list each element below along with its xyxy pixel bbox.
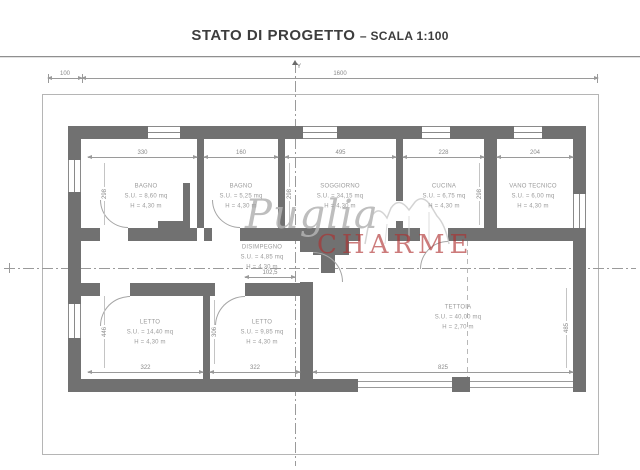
window-top-2 bbox=[303, 126, 337, 139]
dim-width-letto2: 322 bbox=[210, 372, 300, 373]
dim-width-cucina: 228 bbox=[403, 157, 484, 158]
wall-bagno2-soggiorno bbox=[278, 139, 285, 228]
window-right-1 bbox=[573, 194, 586, 228]
dim-label: 228 bbox=[436, 150, 450, 156]
dim-label: 298 bbox=[102, 187, 108, 201]
room-name: VANO TECNICO bbox=[509, 182, 557, 192]
dim-top-margin: 100 bbox=[48, 78, 82, 79]
dim-label: 330 bbox=[135, 150, 149, 156]
window-left-1 bbox=[68, 160, 81, 192]
dim-height-cucina: 298 bbox=[479, 163, 480, 225]
room-name: SOGGIORNO bbox=[317, 182, 364, 192]
room-area: S.U. = 6,00 mq bbox=[509, 192, 557, 202]
wall-soggiorno-cucina-stub bbox=[396, 221, 403, 228]
room-area: S.U. = 6,75 mq bbox=[423, 192, 466, 202]
dim-label: 322 bbox=[248, 365, 262, 371]
dim-width-bagno1: 330 bbox=[88, 157, 197, 158]
room-name: BAGNO bbox=[220, 182, 263, 192]
x-axis-tick bbox=[9, 263, 10, 273]
page-title: STATO DI PROGETTO – SCALA 1:100 bbox=[0, 27, 640, 45]
room-area: S.U. = 34,15 mq bbox=[317, 192, 364, 202]
dim-label: 160 bbox=[234, 150, 248, 156]
room-area: S.U. = 9,85 mq bbox=[241, 328, 284, 338]
wall-letto-top bbox=[210, 283, 215, 296]
room-label-soggiorno: SOGGIORNO S.U. = 34,15 mq H = 4,30 m bbox=[317, 182, 364, 213]
room-name: DISIMPEGNO bbox=[241, 243, 284, 253]
dim-top-overall: 1600 bbox=[82, 78, 598, 79]
dim-width-bagno2: 160 bbox=[204, 157, 278, 158]
wall-sep-top bbox=[448, 228, 586, 241]
dim-disimpegno: 102,5 bbox=[245, 277, 295, 278]
room-label-disimpegno: DISIMPEGNO S.U. = 4,85 mq H = 4,30 m bbox=[241, 243, 284, 274]
title-divider bbox=[0, 56, 640, 57]
room-height: H = 4,30 m bbox=[125, 202, 168, 212]
title-scale: – SCALA 1:100 bbox=[360, 29, 449, 43]
dim-label: 298 bbox=[287, 187, 293, 201]
room-label-cucina: CUCINA S.U. = 6,75 mq H = 4,30 m bbox=[423, 182, 466, 213]
wall-sep-top bbox=[128, 228, 197, 241]
room-height: H = 4,30 m bbox=[509, 202, 557, 212]
room-height: H = 4,30 m bbox=[241, 263, 284, 273]
dim-label: 1600 bbox=[331, 71, 348, 77]
title-main: STATO DI PROGETTO bbox=[191, 27, 355, 44]
dim-width-tettoia: 825 bbox=[313, 372, 573, 373]
dim-label: 485 bbox=[564, 321, 570, 335]
wall-sep-top bbox=[388, 228, 420, 241]
window-top-3 bbox=[422, 126, 450, 139]
y-axis-label: Y bbox=[297, 64, 301, 70]
room-area: S.U. = 4,85 mq bbox=[241, 253, 284, 263]
wall-sep-top bbox=[240, 228, 360, 241]
wall-exterior-bottom bbox=[68, 379, 358, 392]
dim-height-soggiorno: 298 bbox=[289, 163, 290, 225]
dim-label: 322 bbox=[138, 365, 152, 371]
wall-exterior-right bbox=[573, 126, 586, 392]
wall-letto-top bbox=[81, 283, 100, 296]
window-top-1 bbox=[148, 126, 180, 139]
room-area: S.U. = 8,60 mq bbox=[125, 192, 168, 202]
wall-sep-top bbox=[81, 228, 100, 241]
wall-letto-top bbox=[245, 283, 300, 296]
wall-letto1-letto2 bbox=[203, 283, 210, 379]
room-height: H = 4,30 m bbox=[241, 338, 284, 348]
fixture-wall-horizontal bbox=[158, 221, 190, 228]
room-name: CUCINA bbox=[423, 182, 466, 192]
wall-bagno1-bagno2 bbox=[197, 139, 204, 228]
dim-label: 306 bbox=[212, 325, 218, 339]
dim-label: 298 bbox=[477, 187, 483, 201]
room-label-tettoia: TETTOIA S.U. = 40,00 mq H = 2,70 m bbox=[435, 303, 482, 334]
wall-corridor-tettoia-upper bbox=[300, 241, 313, 252]
dim-height-letto2: 306 bbox=[214, 300, 215, 364]
room-height: H = 4,30 m bbox=[317, 202, 364, 212]
room-name: LETTO bbox=[127, 318, 174, 328]
window-top-4 bbox=[514, 126, 542, 139]
room-name: TETTOIA bbox=[435, 303, 482, 313]
dim-label: 495 bbox=[333, 150, 347, 156]
centerline-vertical bbox=[295, 62, 296, 466]
room-height: H = 4,30 m bbox=[127, 338, 174, 348]
room-name: LETTO bbox=[241, 318, 284, 328]
wall-soggiorno-cucina bbox=[396, 139, 403, 201]
room-area: S.U. = 40,00 mq bbox=[435, 313, 482, 323]
tettoia-pillar bbox=[452, 377, 470, 392]
dim-height-top-left: 298 bbox=[104, 163, 105, 225]
wall-letto-top bbox=[130, 283, 203, 296]
room-height: H = 4,30 m bbox=[220, 202, 263, 212]
dim-label: 825 bbox=[436, 365, 450, 371]
room-area: S.U. = 14,40 mq bbox=[127, 328, 174, 338]
dim-width-vano: 204 bbox=[497, 157, 573, 158]
dim-height-tettoia: 485 bbox=[566, 288, 567, 368]
room-label-letto-2: LETTO S.U. = 9,85 mq H = 4,30 m bbox=[241, 318, 284, 349]
wall-sep-top bbox=[204, 228, 212, 241]
dim-label: 100 bbox=[58, 71, 72, 77]
wall-corridor-tettoia-lower bbox=[300, 282, 313, 392]
drawing-sheet: STATO DI PROGETTO – SCALA 1:100 Y 100 16… bbox=[0, 0, 640, 470]
dim-width-letto1: 322 bbox=[88, 372, 203, 373]
room-label-bagno-1: BAGNO S.U. = 8,60 mq H = 4,30 m bbox=[125, 182, 168, 213]
room-height: H = 4,30 m bbox=[423, 202, 466, 212]
room-label-bagno-2: BAGNO S.U. = 5,25 mq H = 4,30 m bbox=[220, 182, 263, 213]
room-label-vano-tecnico: VANO TECNICO S.U. = 6,00 mq H = 4,30 m bbox=[509, 182, 557, 213]
room-height: H = 2,70 m bbox=[435, 323, 482, 333]
window-left-2 bbox=[68, 304, 81, 338]
room-area: S.U. = 5,25 mq bbox=[220, 192, 263, 202]
room-label-letto-1: LETTO S.U. = 14,40 mq H = 4,30 m bbox=[127, 318, 174, 349]
dim-label: 204 bbox=[528, 150, 542, 156]
dim-label: 446 bbox=[102, 325, 108, 339]
dim-height-letto1: 446 bbox=[104, 296, 105, 368]
wall-cucina-vano bbox=[484, 139, 497, 228]
room-name: BAGNO bbox=[125, 182, 168, 192]
dim-width-soggiorno: 495 bbox=[285, 157, 396, 158]
